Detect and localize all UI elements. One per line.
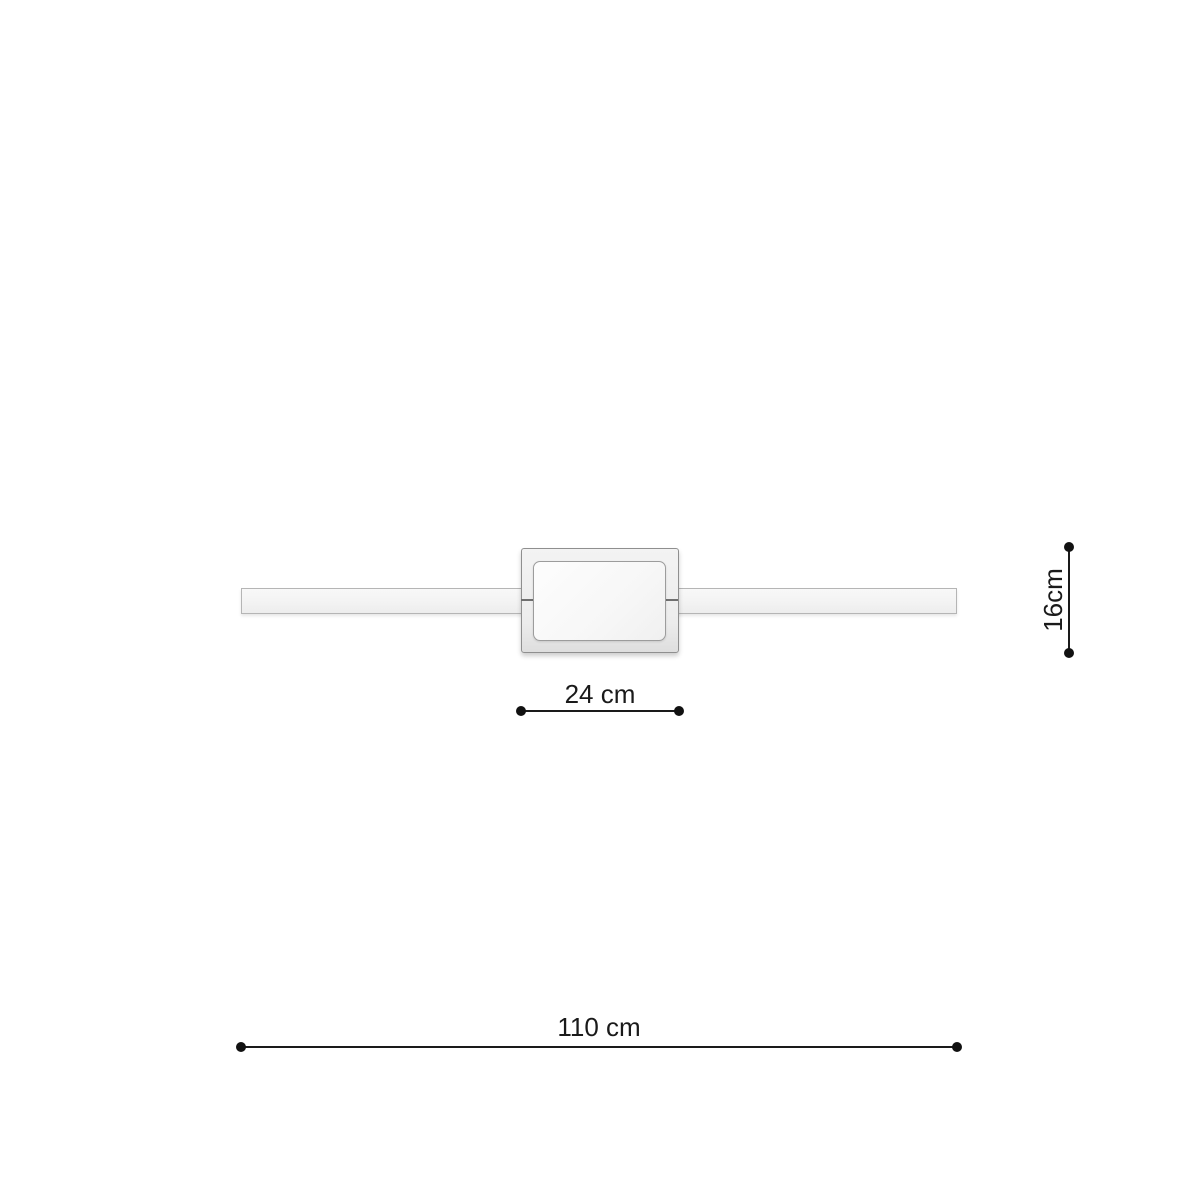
inner-panel [533, 561, 666, 641]
dim-endpoint-dot [516, 706, 526, 716]
dim-line-plate-width [521, 710, 679, 712]
plate-seam-right [665, 599, 678, 601]
dim-label-total-width: 110 cm [241, 1013, 957, 1041]
dim-label-plate-width: 24 cm [521, 680, 679, 708]
dim-line-total-width [241, 1046, 957, 1048]
dim-line-plate-height [1068, 547, 1070, 653]
dim-endpoint-dot [952, 1042, 962, 1052]
dim-endpoint-dot [674, 706, 684, 716]
dim-endpoint-dot [236, 1042, 246, 1052]
dim-endpoint-dot [1064, 542, 1074, 552]
dim-label-plate-height: 16cm [1039, 540, 1067, 660]
dimension-diagram: 24 cm 16cm 110 cm [0, 0, 1200, 1200]
dim-endpoint-dot [1064, 648, 1074, 658]
